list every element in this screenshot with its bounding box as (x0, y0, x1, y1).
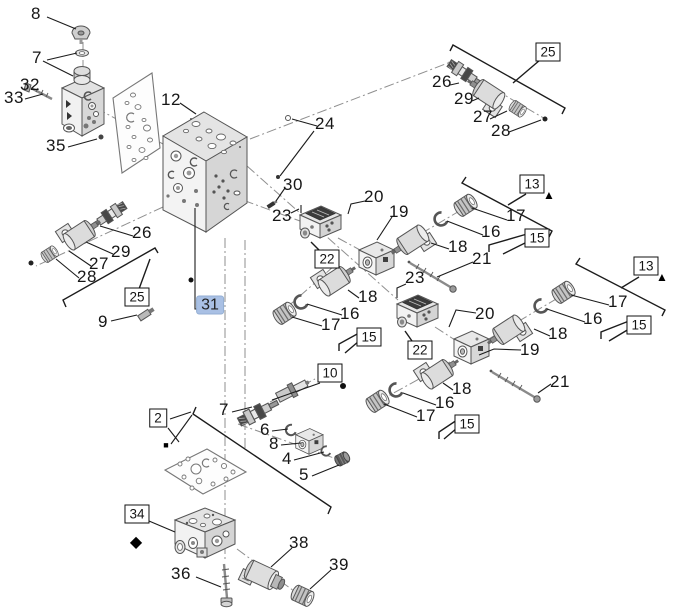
callout-10[interactable]: 10 (317, 364, 342, 383)
callout-15[interactable]: 15 (626, 316, 651, 335)
callout-30[interactable]: 30 (283, 175, 303, 195)
callout-23[interactable]: 23 (272, 206, 292, 226)
callout-13[interactable]: 13 (633, 257, 658, 276)
triangle-marker: ▲ (656, 270, 668, 284)
callout-12[interactable]: 12 (161, 90, 181, 110)
callout-29[interactable]: 29 (454, 89, 474, 109)
callout-21[interactable]: 21 (472, 249, 492, 269)
callout-17[interactable]: 17 (506, 206, 526, 226)
callout-27[interactable]: 27 (473, 107, 493, 127)
callout-33[interactable]: 33 (4, 88, 24, 108)
callout-layer: 8732333512243023262927289262927282019181… (0, 0, 676, 611)
callout-22[interactable]: 22 (407, 341, 432, 360)
callout-13[interactable]: 13 (519, 175, 544, 194)
callout-8[interactable]: 8 (269, 434, 279, 454)
callout-21[interactable]: 21 (550, 372, 570, 392)
callout-17[interactable]: 17 (416, 406, 436, 426)
callout-8[interactable]: 8 (31, 4, 41, 24)
callout-28[interactable]: 28 (77, 267, 97, 287)
callout-26[interactable]: 26 (132, 223, 152, 243)
callout-18[interactable]: 18 (448, 237, 468, 257)
callout-16[interactable]: 16 (481, 222, 501, 242)
callout-35[interactable]: 35 (46, 136, 66, 156)
callout-36[interactable]: 36 (171, 564, 191, 584)
callout-9[interactable]: 9 (98, 312, 108, 332)
callout-4[interactable]: 4 (282, 449, 292, 469)
callout-19[interactable]: 19 (389, 202, 409, 222)
callout-31[interactable]: 31 (196, 296, 224, 315)
callout-19[interactable]: 19 (520, 340, 540, 360)
callout-18[interactable]: 18 (548, 324, 568, 344)
callout-25[interactable]: 25 (124, 288, 149, 307)
callout-20[interactable]: 20 (364, 187, 384, 207)
callout-5[interactable]: 5 (299, 465, 309, 485)
callout-18[interactable]: 18 (358, 287, 378, 307)
callout-24[interactable]: 24 (315, 114, 335, 134)
triangle-marker: ▲ (543, 188, 555, 202)
parts-diagram: 8732333512243023262927289262927282019181… (0, 0, 676, 611)
callout-7[interactable]: 7 (32, 48, 42, 68)
callout-16[interactable]: 16 (435, 393, 455, 413)
callout-7[interactable]: 7 (219, 400, 229, 420)
callout-15[interactable]: 15 (454, 415, 479, 434)
callout-34[interactable]: 34 (124, 505, 149, 524)
callout-25[interactable]: 25 (535, 43, 560, 62)
callout-22[interactable]: 22 (314, 250, 339, 269)
callout-16[interactable]: 16 (340, 304, 360, 324)
square-marker: ■ (163, 440, 168, 450)
callout-17[interactable]: 17 (608, 292, 628, 312)
callout-28[interactable]: 28 (491, 121, 511, 141)
callout-26[interactable]: 26 (432, 72, 452, 92)
diamond-marker: ◆ (130, 532, 142, 552)
callout-2[interactable]: 2 (149, 409, 167, 428)
callout-18[interactable]: 18 (452, 379, 472, 399)
callout-20[interactable]: 20 (475, 304, 495, 324)
callout-15[interactable]: 15 (356, 328, 381, 347)
callout-23[interactable]: 23 (405, 268, 425, 288)
callout-15[interactable]: 15 (524, 229, 549, 248)
callout-29[interactable]: 29 (111, 242, 131, 262)
callout-39[interactable]: 39 (329, 555, 349, 575)
callout-17[interactable]: 17 (321, 315, 341, 335)
callout-38[interactable]: 38 (289, 533, 309, 553)
callout-16[interactable]: 16 (583, 309, 603, 329)
